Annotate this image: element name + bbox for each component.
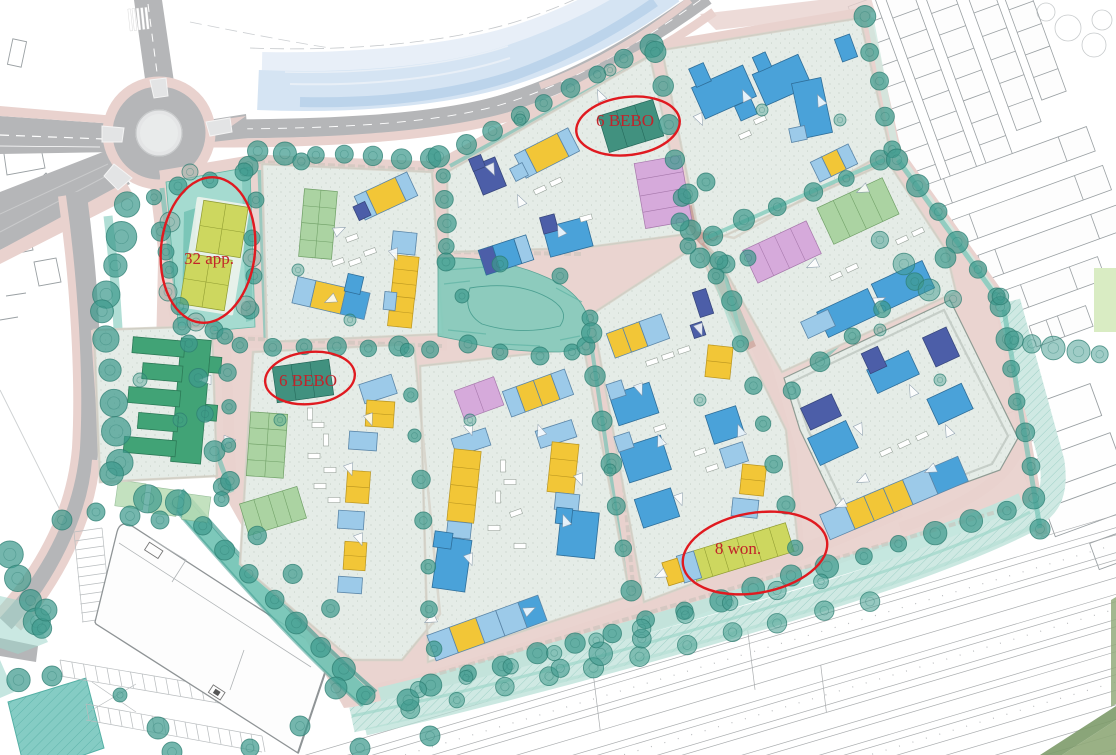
svg-text:6 BEBO: 6 BEBO [279,371,337,390]
svg-text:6 BEBO: 6 BEBO [596,111,654,130]
svg-text:8 won.: 8 won. [715,539,761,558]
svg-text:32 app.: 32 app. [184,249,234,268]
